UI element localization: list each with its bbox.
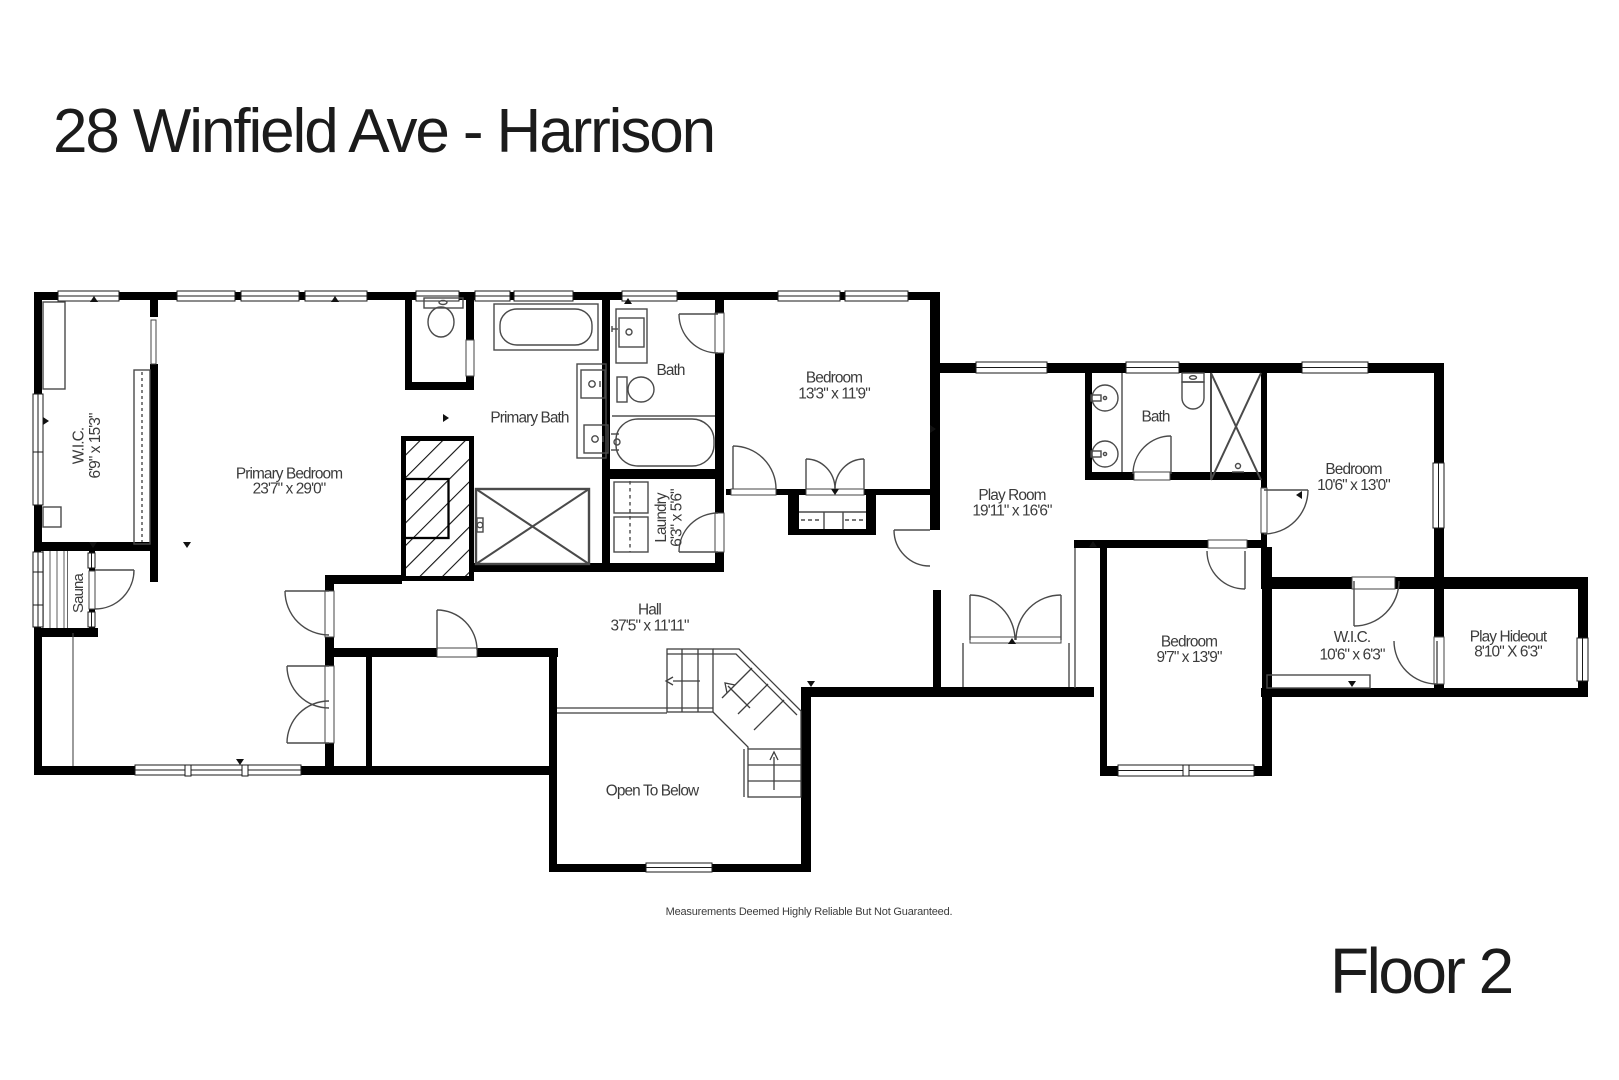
svg-text:Laundry6'3" x 5'6": Laundry6'3" x 5'6" <box>653 489 686 547</box>
svg-text:10'6" x 6'3": 10'6" x 6'3" <box>1319 647 1384 664</box>
svg-text:Bedroom: Bedroom <box>806 369 862 386</box>
svg-text:Bedroom: Bedroom <box>1325 461 1381 478</box>
svg-text:Sauna: Sauna <box>70 573 87 613</box>
svg-text:Bath: Bath <box>656 362 684 379</box>
svg-text:Open To Below: Open To Below <box>606 783 700 800</box>
svg-text:Hall: Hall <box>638 601 661 618</box>
svg-text:28 Winfield Ave - Harrison: 28 Winfield Ave - Harrison <box>53 97 714 166</box>
svg-text:Floor 2: Floor 2 <box>1330 935 1512 1007</box>
svg-text:W.I.C.: W.I.C. <box>1334 629 1371 646</box>
svg-text:19'11" x 16'6": 19'11" x 16'6" <box>972 503 1052 520</box>
svg-text:10'6" x 13'0": 10'6" x 13'0" <box>1317 477 1390 494</box>
svg-text:Bath: Bath <box>1141 409 1169 426</box>
svg-text:13'3" x 11'9": 13'3" x 11'9" <box>798 386 870 403</box>
svg-text:37'5" x 11'11": 37'5" x 11'11" <box>610 618 689 635</box>
svg-text:9'7" x 13'9": 9'7" x 13'9" <box>1156 649 1221 666</box>
svg-text:Bedroom: Bedroom <box>1161 633 1217 650</box>
svg-text:Measurements Deemed Highly Rel: Measurements Deemed Highly Reliable But … <box>666 906 953 918</box>
svg-text:Primary Bath: Primary Bath <box>490 409 568 426</box>
svg-text:Play Room: Play Room <box>978 487 1045 504</box>
svg-text:23'7" x 29'0": 23'7" x 29'0" <box>253 481 326 498</box>
svg-text:8'10" X 6'3": 8'10" X 6'3" <box>1474 644 1542 661</box>
